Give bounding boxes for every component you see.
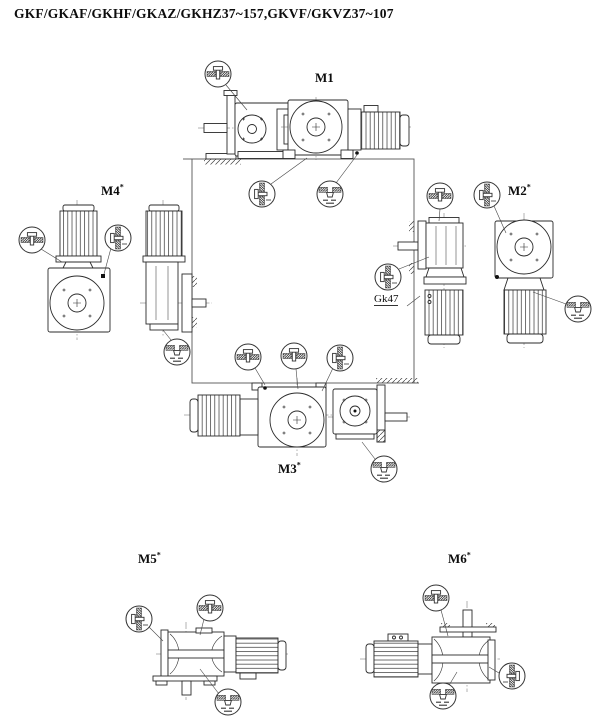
oil-level-plug-symbol — [104, 225, 131, 274]
mounting-position-diagram — [0, 0, 600, 724]
oil-level-plug-symbol — [322, 345, 353, 391]
m6-vertical-unit-side-view — [360, 601, 500, 692]
m4-helical-unit-front-view — [48, 200, 110, 340]
vent-plug-symbol — [235, 344, 265, 385]
oil-drain-plug-symbol — [163, 330, 190, 365]
oil-level-plug-symbol — [249, 158, 307, 207]
m3-bevel-unit-side-view — [328, 378, 418, 442]
m5-vertical-unit-side-view — [153, 622, 290, 700]
m2-bevel-unit-side-view — [393, 213, 468, 348]
m1-helical-unit-front-view — [281, 97, 411, 160]
gk47-leader-line — [407, 296, 420, 306]
m1-bevel-unit-side-view — [198, 91, 296, 165]
m2-helical-unit-front-view — [495, 213, 553, 348]
m3-helical-unit-front-view — [184, 378, 334, 456]
vent-plug-symbol — [427, 183, 453, 221]
vent-plug-symbol — [205, 61, 247, 110]
oil-drain-plug-symbol — [317, 155, 357, 207]
m4-bevel-unit-side-view — [140, 200, 212, 336]
vent-plug-symbol — [281, 343, 307, 389]
catalog-page: GKF/GKAF/GKHF/GKAZ/GKHZ37~157,GKVF/GKVZ3… — [0, 0, 600, 724]
oil-level-plug-symbol — [126, 606, 163, 641]
oil-drain-plug-symbol — [362, 442, 397, 482]
